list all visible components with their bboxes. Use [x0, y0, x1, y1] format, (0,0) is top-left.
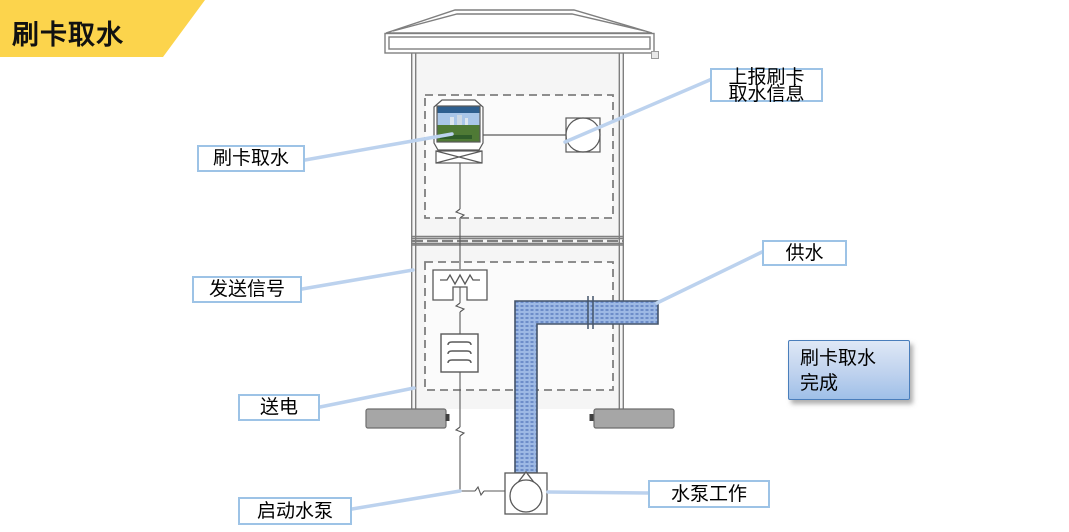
leader-send-signal — [302, 270, 413, 289]
leader-pump-working — [548, 492, 648, 493]
label-pump-working-text: 水泵工作 — [671, 485, 747, 504]
label-send-signal: 发送信号 — [192, 276, 302, 303]
foundation-right — [594, 409, 674, 428]
completion-line2: 完成 — [800, 371, 909, 396]
label-start-pump: 启动水泵 — [238, 497, 352, 525]
label-start-pump-text: 启动水泵 — [257, 502, 333, 521]
completion-line1: 刷卡取水 — [800, 346, 909, 371]
pump-icon — [505, 472, 547, 514]
label-swipe-card-text: 刷卡取水 — [213, 149, 289, 168]
label-report-line2: 取水信息 — [728, 85, 804, 104]
card-reader-icon — [434, 100, 483, 163]
slide-title: 刷卡取水 — [12, 13, 124, 52]
leader-start-pump — [352, 491, 460, 509]
slide-canvas: 刷卡取水 刷卡取水 上报刷卡 取水信息 发送信号 送电 启动水泵 水泵工作 供水… — [0, 0, 1069, 532]
label-swipe-card: 刷卡取水 — [197, 145, 305, 172]
diagram-canvas — [0, 0, 1069, 532]
label-send-signal-text: 发送信号 — [209, 280, 285, 299]
terminal-block-icon — [441, 334, 478, 372]
label-pump-working: 水泵工作 — [648, 480, 770, 508]
label-power-on: 送电 — [238, 394, 320, 421]
label-report-info: 上报刷卡 取水信息 — [710, 68, 823, 102]
leader-power-on — [320, 388, 414, 407]
completion-box: 刷卡取水 完成 — [788, 340, 910, 400]
foundation-left — [366, 409, 446, 428]
label-power-on-text: 送电 — [260, 398, 298, 417]
leader-water-supply — [657, 252, 762, 303]
artifact-marker — [651, 51, 659, 59]
roof-icon — [385, 10, 654, 53]
label-water-supply-text: 供水 — [785, 244, 823, 263]
label-water-supply: 供水 — [762, 240, 847, 266]
